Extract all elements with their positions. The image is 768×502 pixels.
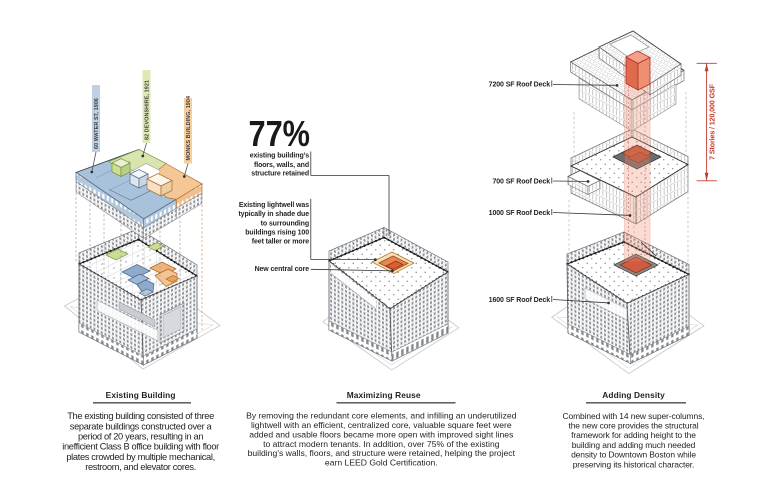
svg-text:7 Stories / 120,000 GSF: 7 Stories / 120,000 GSF	[709, 83, 717, 160]
svg-text:Maximizing Reuse: Maximizing Reuse	[347, 390, 421, 400]
svg-text:the new core provides the stru: the new core provides the structural	[568, 421, 698, 431]
svg-text:feet taller or more: feet taller or more	[252, 238, 309, 245]
svg-text:60 WATER ST, 1906: 60 WATER ST, 1906	[94, 98, 100, 149]
svg-text:restroom, and elevator cores.: restroom, and elevator cores.	[85, 462, 196, 472]
svg-text:floors, walls, and: floors, walls, and	[254, 162, 309, 169]
svg-text:New central core: New central core	[255, 266, 310, 273]
svg-text:structure retained: structure retained	[251, 171, 309, 178]
svg-text:7200 SF Roof Deck: 7200 SF Roof Deck	[489, 81, 551, 88]
svg-text:period of 20 years, resulting: period of 20 years, resulting in an	[78, 432, 203, 442]
svg-text:preserving its historical char: preserving its historical character.	[573, 459, 695, 469]
svg-text:density to Downtown Boston whi: density to Downtown Boston while	[571, 450, 696, 460]
svg-text:building and adding much neede: building and adding much needed	[572, 440, 696, 450]
svg-text:typically in shade due: typically in shade due	[238, 211, 309, 218]
svg-text:buildings rising 100: buildings rising 100	[245, 229, 309, 236]
svg-text:700 SF Roof Deck: 700 SF Roof Deck	[492, 178, 550, 185]
svg-text:to surrounding: to surrounding	[261, 220, 309, 227]
svg-text:Existing lightwell was: Existing lightwell was	[239, 202, 309, 209]
svg-text:separate buildings constructed: separate buildings constructed over a	[70, 421, 213, 431]
svg-text:inefficient Class B office bui: inefficient Class B office building with…	[62, 442, 219, 452]
svg-text:existing building’s: existing building’s	[250, 153, 309, 160]
svg-text:plates crowded by multiple mec: plates crowded by multiple mechanical,	[66, 452, 214, 462]
svg-text:77%: 77%	[249, 113, 311, 154]
svg-text:Adding Density: Adding Density	[602, 390, 665, 400]
svg-text:framework for adding height to: framework for adding height to the	[571, 430, 696, 440]
svg-text:1600 SF Roof Deck: 1600 SF Roof Deck	[489, 297, 551, 304]
svg-text:1000 SF Roof Deck: 1000 SF Roof Deck	[489, 210, 551, 217]
svg-text:earn LEED Gold Certification.: earn LEED Gold Certification.	[325, 457, 438, 467]
svg-text:The existing building consiste: The existing building consisted of three	[67, 411, 214, 421]
svg-text:MONKS BUILDING, 1904: MONKS BUILDING, 1904	[186, 96, 192, 161]
svg-text:Combined with 14 new super-col: Combined with 14 new super-columns,	[563, 411, 705, 421]
svg-text:Existing Building: Existing Building	[106, 390, 176, 400]
svg-text:82 DEVONSHIRE, 1921: 82 DEVONSHIRE, 1921	[145, 80, 151, 140]
